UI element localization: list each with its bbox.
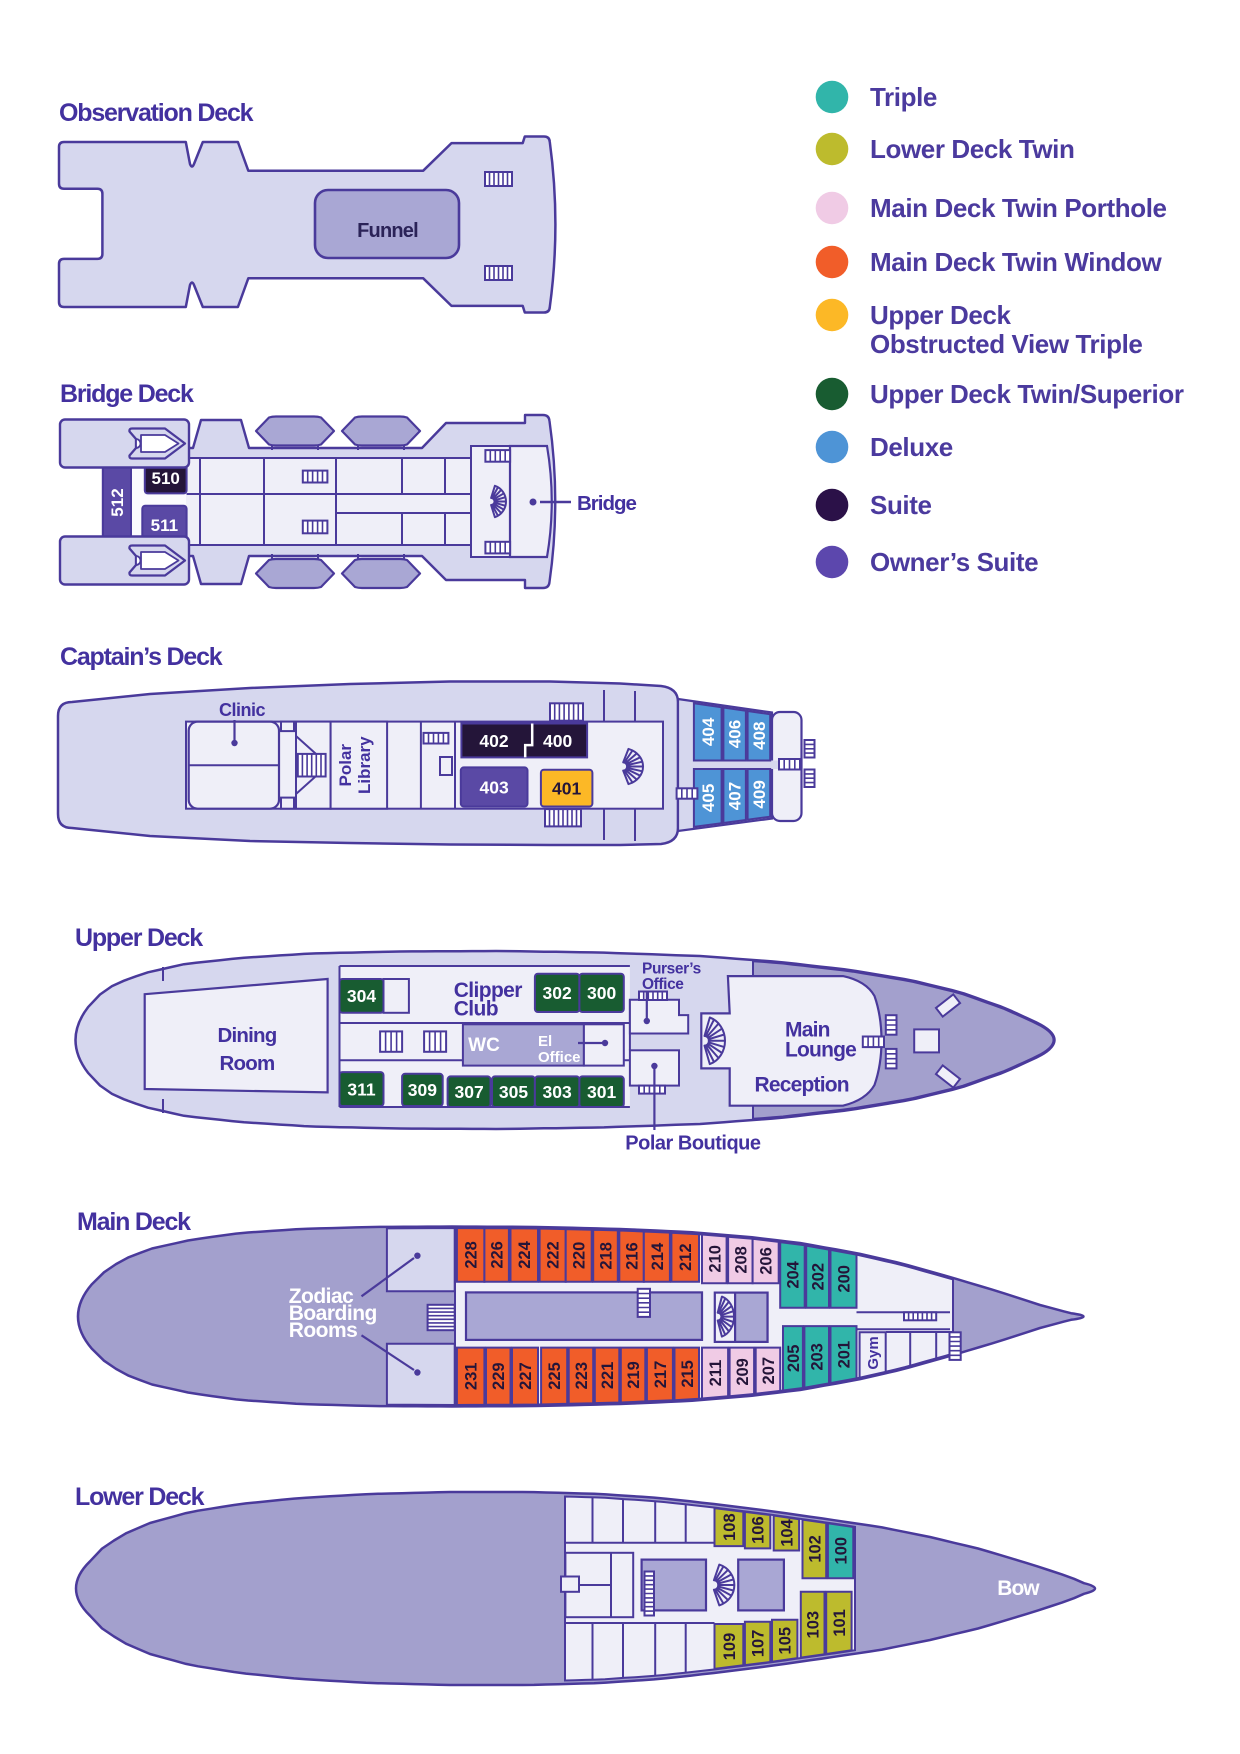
svg-text:Deluxe: Deluxe — [870, 432, 953, 462]
svg-text:Bridge: Bridge — [577, 492, 637, 515]
svg-text:Club: Club — [454, 998, 498, 1021]
svg-text:301: 301 — [587, 1082, 616, 1102]
svg-text:204: 204 — [784, 1260, 802, 1288]
svg-text:WC: WC — [468, 1035, 500, 1056]
svg-text:309: 309 — [408, 1080, 437, 1100]
svg-text:Office: Office — [642, 976, 684, 993]
svg-text:Bow: Bow — [997, 1577, 1040, 1600]
svg-text:Upper Deck: Upper Deck — [870, 300, 1011, 330]
svg-text:Captain’s Deck: Captain’s Deck — [60, 643, 223, 671]
svg-text:200: 200 — [835, 1265, 853, 1293]
svg-text:304: 304 — [347, 986, 376, 1006]
svg-text:Lower Deck: Lower Deck — [75, 1483, 205, 1511]
svg-text:104: 104 — [778, 1518, 796, 1546]
svg-text:400: 400 — [543, 731, 572, 751]
svg-text:101: 101 — [831, 1609, 849, 1637]
svg-text:228: 228 — [463, 1241, 481, 1269]
svg-text:219: 219 — [625, 1361, 643, 1389]
svg-text:229: 229 — [490, 1362, 508, 1390]
svg-text:Triple: Triple — [870, 82, 937, 112]
svg-text:212: 212 — [677, 1243, 695, 1271]
svg-text:214: 214 — [649, 1242, 667, 1270]
svg-text:222: 222 — [545, 1241, 563, 1269]
svg-text:209: 209 — [734, 1358, 752, 1386]
svg-text:405: 405 — [699, 784, 718, 812]
svg-text:406: 406 — [726, 720, 745, 748]
svg-text:311: 311 — [347, 1079, 375, 1099]
svg-text:Funnel: Funnel — [357, 220, 418, 242]
svg-text:Observation Deck: Observation Deck — [59, 99, 254, 127]
svg-text:302: 302 — [542, 983, 571, 1003]
svg-text:401: 401 — [552, 778, 581, 798]
svg-text:Lower Deck Twin: Lower Deck Twin — [870, 134, 1074, 164]
svg-text:Rooms: Rooms — [289, 1319, 358, 1342]
svg-text:Upper Deck Twin/Superior: Upper Deck Twin/Superior — [870, 379, 1184, 409]
svg-text:208: 208 — [732, 1246, 750, 1274]
svg-text:Lounge: Lounge — [785, 1039, 856, 1062]
svg-text:202: 202 — [810, 1263, 828, 1291]
svg-text:221: 221 — [599, 1362, 617, 1390]
svg-text:Office: Office — [538, 1049, 581, 1066]
svg-text:Main Deck Twin Porthole: Main Deck Twin Porthole — [870, 193, 1167, 223]
svg-text:227: 227 — [517, 1362, 535, 1390]
svg-text:109: 109 — [721, 1633, 739, 1661]
svg-text:404: 404 — [699, 717, 718, 746]
svg-text:305: 305 — [499, 1082, 528, 1102]
svg-text:217: 217 — [652, 1361, 670, 1389]
svg-text:105: 105 — [777, 1627, 795, 1655]
svg-text:Polar Boutique: Polar Boutique — [625, 1133, 761, 1155]
svg-text:408: 408 — [750, 722, 769, 750]
svg-text:403: 403 — [479, 777, 508, 797]
svg-text:108: 108 — [721, 1513, 739, 1541]
svg-text:Library: Library — [355, 736, 374, 794]
svg-text:Upper Deck: Upper Deck — [75, 924, 203, 952]
svg-text:100: 100 — [833, 1537, 851, 1565]
svg-text:Main Deck Twin Window: Main Deck Twin Window — [870, 247, 1163, 277]
svg-text:511: 511 — [151, 516, 178, 535]
svg-text:216: 216 — [623, 1242, 641, 1270]
svg-text:402: 402 — [479, 731, 508, 751]
svg-text:103: 103 — [805, 1611, 823, 1639]
svg-text:Dining: Dining — [218, 1024, 277, 1047]
svg-text:Obstructed View Triple: Obstructed View Triple — [870, 329, 1142, 359]
svg-text:Suite: Suite — [870, 490, 932, 520]
svg-text:Main Deck: Main Deck — [77, 1208, 191, 1236]
svg-text:206: 206 — [758, 1247, 776, 1275]
svg-text:205: 205 — [785, 1345, 803, 1373]
svg-text:512: 512 — [108, 488, 127, 516]
svg-text:Purser’s: Purser’s — [642, 961, 701, 978]
svg-text:Owner’s Suite: Owner’s Suite — [870, 547, 1038, 577]
svg-text:215: 215 — [679, 1360, 697, 1388]
svg-text:211: 211 — [707, 1360, 725, 1387]
svg-text:Room: Room — [220, 1052, 275, 1075]
svg-text:210: 210 — [706, 1245, 724, 1273]
svg-text:220: 220 — [571, 1242, 589, 1270]
svg-text:225: 225 — [546, 1362, 564, 1390]
svg-text:510: 510 — [152, 469, 180, 488]
svg-text:223: 223 — [573, 1362, 591, 1390]
svg-text:El: El — [538, 1033, 552, 1050]
svg-text:307: 307 — [454, 1082, 483, 1102]
svg-text:Gym: Gym — [865, 1336, 882, 1369]
svg-text:224: 224 — [516, 1240, 534, 1268]
svg-text:218: 218 — [597, 1242, 615, 1270]
svg-text:Clinic: Clinic — [219, 700, 265, 720]
svg-text:409: 409 — [750, 780, 769, 808]
svg-text:207: 207 — [760, 1357, 778, 1385]
svg-text:226: 226 — [489, 1241, 507, 1269]
svg-text:Polar: Polar — [336, 744, 355, 787]
svg-text:203: 203 — [809, 1343, 827, 1371]
svg-text:231: 231 — [463, 1363, 481, 1391]
svg-text:Bridge Deck: Bridge Deck — [60, 380, 194, 408]
svg-text:Reception: Reception — [755, 1074, 849, 1097]
svg-text:106: 106 — [750, 1516, 768, 1544]
svg-text:102: 102 — [806, 1535, 824, 1563]
svg-text:407: 407 — [726, 782, 745, 810]
svg-text:107: 107 — [750, 1630, 768, 1658]
svg-text:300: 300 — [587, 983, 616, 1003]
svg-text:303: 303 — [542, 1082, 571, 1102]
svg-text:201: 201 — [835, 1341, 853, 1369]
